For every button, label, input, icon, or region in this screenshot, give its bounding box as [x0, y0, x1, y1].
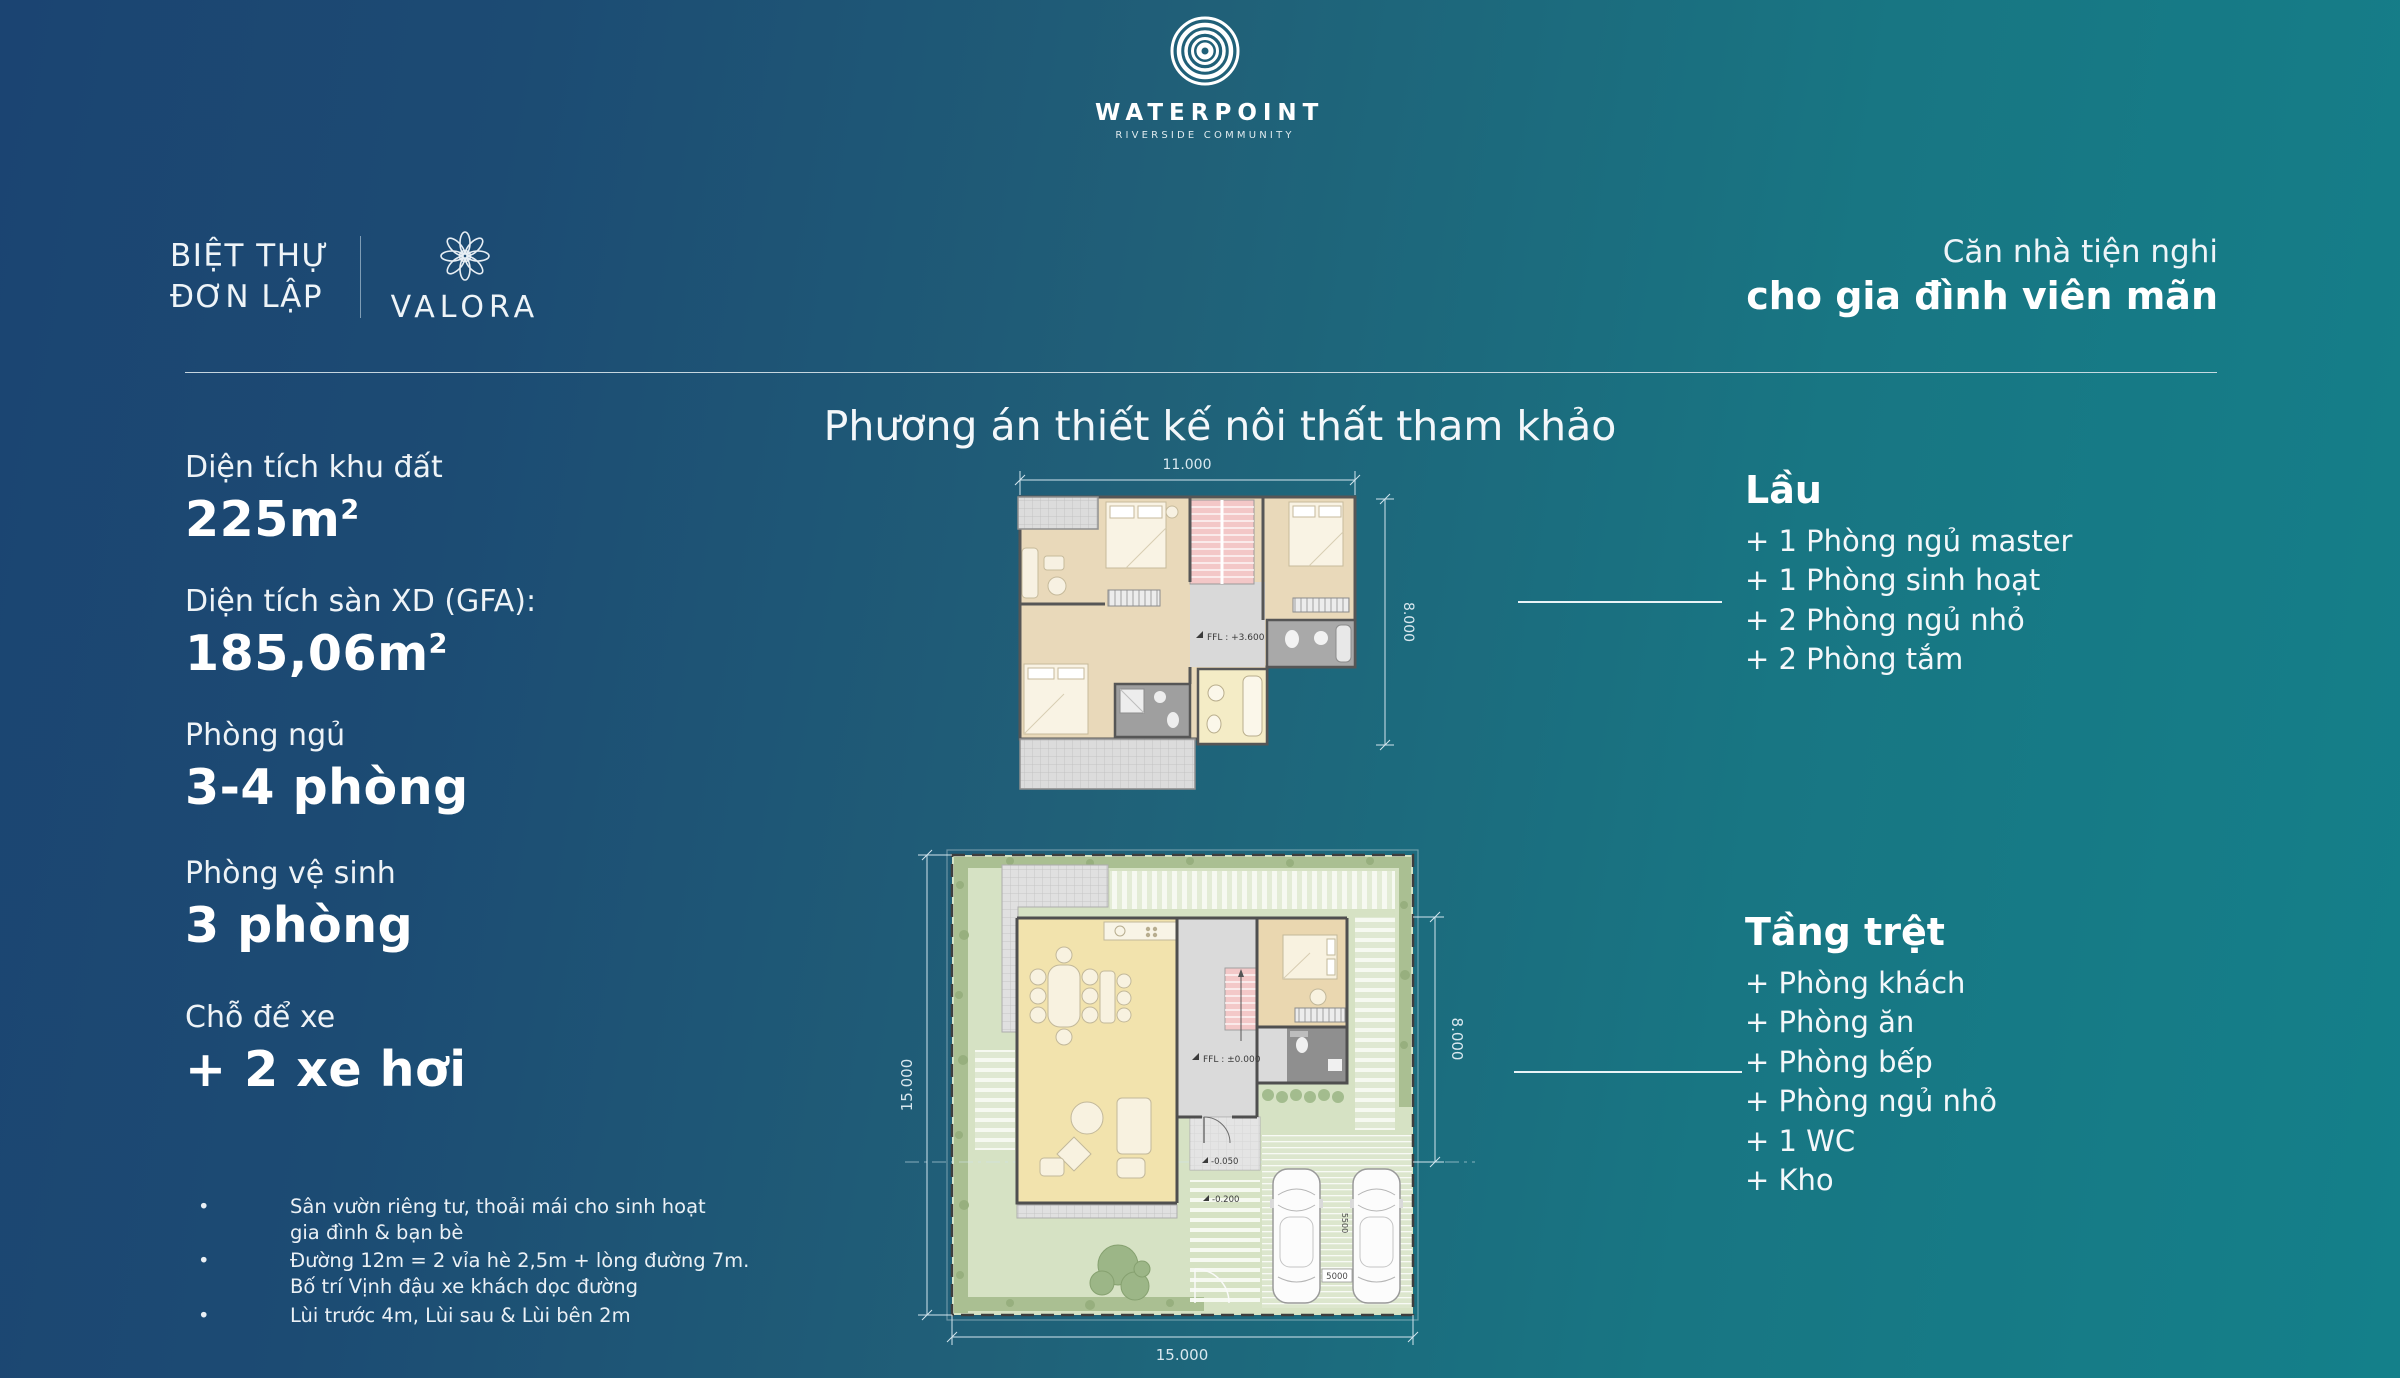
- ground-floor-plan: 5500 5000: [890, 845, 1490, 1365]
- upper-floor-title: Lầu: [1745, 468, 2265, 512]
- kitchen-counter: [1104, 922, 1176, 940]
- spec-label: Diện tích sàn XD (GFA):: [185, 584, 745, 619]
- slide: WATERPOINT RIVERSIDE COMMUNITY BIỆT THỰ …: [0, 0, 2400, 1378]
- spec-value: 185,06m2: [185, 625, 745, 682]
- floor-item: + 1 Phòng ngủ master: [1745, 522, 2265, 561]
- upper-floor-summary: Lầu + 1 Phòng ngủ master + 1 Phòng sinh …: [1745, 468, 2265, 680]
- logo-title: WATERPOINT: [1095, 100, 1315, 126]
- upper-balcony-bottom: [1020, 739, 1195, 789]
- tagline-line1: Căn nhà tiện nghi: [1746, 234, 2218, 270]
- slat-band-right: [1355, 917, 1395, 1130]
- tagline-line2: cho gia đình viên mãn: [1746, 274, 2218, 318]
- ground-floor-summary: Tầng trệt + Phòng khách + Phòng ăn + Phò…: [1745, 910, 2265, 1201]
- upper-floor-items: + 1 Phòng ngủ master + 1 Phòng sinh hoạt…: [1745, 522, 2265, 680]
- valora-rosette-icon: [437, 228, 493, 284]
- plan-heading: Phương án thiết kế nôi thất tham khảo: [760, 402, 1680, 450]
- spec-label: Diện tích khu đất: [185, 450, 745, 485]
- upper-bed-1: [1106, 502, 1166, 568]
- upper-bathroom-yellow: [1198, 669, 1267, 744]
- notes-list: Sân vườn riêng tư, thoải mái cho sinh ho…: [196, 1194, 756, 1332]
- upper-bed-2: [1289, 502, 1343, 566]
- svg-text:FFL : ±0.000: FFL : ±0.000: [1203, 1055, 1261, 1065]
- waterpoint-rings-icon: [1166, 12, 1244, 90]
- upper-stairs: [1190, 500, 1254, 584]
- product-type: BIỆT THỰ ĐƠN LẬP: [170, 236, 330, 317]
- note-item: Sân vườn riêng tư, thoải mái cho sinh ho…: [196, 1194, 756, 1245]
- ground-floor-title: Tầng trệt: [1745, 910, 2265, 954]
- house-depth-dim-label: 8.000: [1448, 1018, 1466, 1061]
- svg-text:5000: 5000: [1326, 1272, 1348, 1282]
- spec-value-text: 185,06m: [185, 625, 429, 682]
- leader-line-ground-floor: [1514, 1071, 1742, 1073]
- spec-value: 225m2: [185, 491, 745, 548]
- rear-terrace: [1017, 1205, 1177, 1218]
- car-icon: [1270, 1169, 1323, 1303]
- floor-item: + 2 Phòng tắm: [1745, 640, 2265, 679]
- upper-width-dim-label: 11.000: [1163, 457, 1212, 473]
- upper-wardrobe-2: [1293, 598, 1349, 612]
- upper-bathroom-master: [1267, 620, 1355, 667]
- upper-bed-3: [1024, 664, 1088, 734]
- upper-landing: [1190, 582, 1265, 667]
- upper-balcony-top: [1018, 497, 1098, 529]
- floor-item: + Phòng ăn: [1745, 1003, 2265, 1042]
- logo-subtitle: RIVERSIDE COMMUNITY: [1095, 130, 1315, 141]
- note-item: Đường 12m = 2 vỉa hè 2,5m + lòng đường 7…: [196, 1248, 756, 1299]
- spec-value-sup: 2: [340, 495, 359, 526]
- spec-value: 3-4 phòng: [185, 759, 745, 816]
- floor-item: + Phòng ngủ nhỏ: [1745, 1082, 2265, 1121]
- spec-value-text: 225m: [185, 491, 340, 548]
- note-line: Lùi trước 4m, Lùi sau & Lùi bên 2m: [290, 1303, 756, 1329]
- upper-floor-plan: 11.000 8.000: [1000, 452, 1420, 802]
- product-type-line1: BIỆT THỰ: [170, 236, 330, 276]
- valora-logo: VALORA: [391, 228, 540, 325]
- spec-land-area: Diện tích khu đất 225m2: [185, 450, 745, 548]
- spec-value: + 2 xe hơi: [185, 1041, 745, 1098]
- spec-label: Phòng ngủ: [185, 718, 745, 753]
- car-space-width-label: 5500: [1340, 1213, 1349, 1233]
- note-line: gia đình & bạn bè: [290, 1220, 756, 1246]
- spec-value: 3 phòng: [185, 897, 745, 954]
- lot-width-dim-label: 15.000: [1156, 1346, 1209, 1364]
- note-line: Sân vườn riêng tư, thoải mái cho sinh ho…: [290, 1194, 756, 1220]
- spec-parking: Chỗ để xe + 2 xe hơi: [185, 1000, 745, 1098]
- svg-text:FFL : +3.600: FFL : +3.600: [1207, 633, 1265, 643]
- ground-ffl-label: FFL : ±0.000: [1192, 1053, 1261, 1065]
- note-item: Lùi trước 4m, Lùi sau & Lùi bên 2m: [196, 1303, 756, 1329]
- note-line: Bố trí Vịnh đậu xe khách dọc đường: [290, 1274, 756, 1300]
- floor-item: + 2 Phòng ngủ nhỏ: [1745, 601, 2265, 640]
- ground-stairs: [1225, 968, 1257, 1041]
- waterpoint-logo: WATERPOINT RIVERSIDE COMMUNITY: [1095, 12, 1315, 141]
- floor-item: + 1 WC: [1745, 1122, 2265, 1161]
- valora-name: VALORA: [391, 290, 540, 325]
- floor-item: + Phòng bếp: [1745, 1043, 2265, 1082]
- slat-band-left: [975, 1050, 1015, 1150]
- product-type-line2: ĐƠN LẬP: [170, 277, 330, 317]
- upper-depth-dim-label: 8.000: [1400, 602, 1416, 642]
- upper-wardrobe-1: [1108, 590, 1160, 606]
- trellis-band-top: [1110, 871, 1395, 909]
- brand-divider: [360, 236, 361, 318]
- svg-text:-0.200: -0.200: [1212, 1195, 1239, 1205]
- spec-value-sup: 2: [429, 629, 448, 660]
- spec-gfa: Diện tích sàn XD (GFA): 185,06m2: [185, 584, 745, 682]
- upper-bathroom-small: [1115, 684, 1190, 737]
- spec-bedrooms: Phòng ngủ 3-4 phòng: [185, 718, 745, 816]
- spec-label: Chỗ để xe: [185, 1000, 745, 1035]
- upper-ffl-label: FFL : +3.600: [1196, 631, 1265, 643]
- ground-floor-items: + Phòng khách + Phòng ăn + Phòng bếp + P…: [1745, 964, 2265, 1201]
- floor-item: + 1 Phòng sinh hoạt: [1745, 561, 2265, 600]
- floor-item: + Phòng khách: [1745, 964, 2265, 1003]
- note-line: Đường 12m = 2 vỉa hè 2,5m + lòng đường 7…: [290, 1248, 756, 1274]
- lot-depth-dim-label: 15.000: [898, 1059, 916, 1112]
- spec-label: Phòng vệ sinh: [185, 856, 745, 891]
- product-brand: BIỆT THỰ ĐƠN LẬP VALORA: [170, 228, 539, 325]
- svg-text:-0.050: -0.050: [1211, 1157, 1238, 1167]
- storage-kho: [1257, 1027, 1287, 1083]
- leader-line-upper-floor: [1518, 601, 1722, 603]
- spec-bathrooms: Phòng vệ sinh 3 phòng: [185, 856, 745, 954]
- floor-item: + Kho: [1745, 1161, 2265, 1200]
- car-icon: [1350, 1169, 1403, 1303]
- header-divider-rule: [185, 372, 2217, 373]
- car-space-length-label: 5000: [1322, 1269, 1352, 1282]
- tagline: Căn nhà tiện nghi cho gia đình viên mãn: [1746, 234, 2218, 318]
